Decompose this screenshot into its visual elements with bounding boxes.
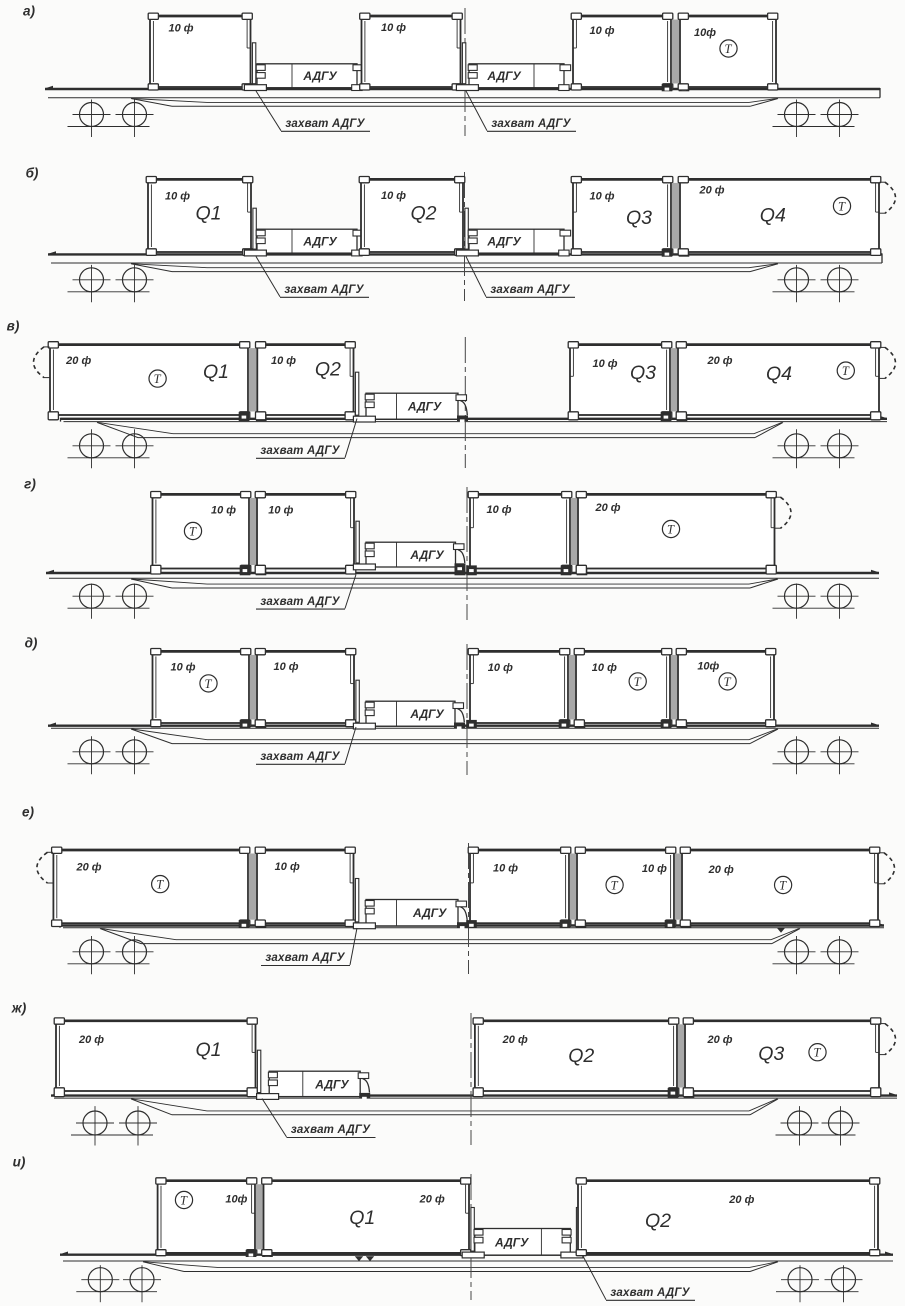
svg-text:10 ф: 10 ф (165, 191, 190, 203)
svg-text:20 ф: 20 ф (65, 355, 91, 367)
svg-text:10ф: 10ф (694, 27, 716, 39)
svg-text:АДГУ: АДГУ (409, 707, 444, 721)
svg-text:Q3: Q3 (758, 1043, 784, 1065)
svg-text:20 ф: 20 ф (502, 1034, 528, 1046)
svg-text:Q1: Q1 (195, 1039, 221, 1061)
svg-text:в): в) (7, 319, 20, 334)
svg-text:б): б) (26, 166, 39, 181)
svg-text:АДГУ: АДГУ (486, 69, 521, 83)
svg-text:10 ф: 10 ф (273, 661, 298, 673)
svg-text:АДГУ: АДГУ (409, 548, 444, 562)
svg-text:захват АДГУ: захват АДГУ (260, 445, 340, 457)
svg-text:Q2: Q2 (568, 1045, 594, 1067)
svg-text:T: T (814, 1046, 822, 1060)
svg-text:20 ф: 20 ф (706, 1034, 732, 1046)
svg-text:Q4: Q4 (766, 363, 792, 385)
svg-text:T: T (205, 677, 213, 691)
svg-text:10 ф: 10 ф (592, 358, 617, 370)
svg-text:АДГУ: АДГУ (302, 235, 337, 249)
svg-text:захват АДГУ: захват АДГУ (265, 952, 345, 964)
svg-text:10 ф: 10 ф (381, 22, 406, 34)
svg-text:е): е) (22, 805, 35, 820)
svg-text:АДГУ: АДГУ (302, 69, 337, 83)
svg-text:T: T (154, 372, 162, 386)
svg-text:10 ф: 10 ф (211, 505, 236, 517)
svg-text:захват АДГУ: захват АДГУ (291, 1124, 371, 1136)
svg-text:10 ф: 10 ф (589, 191, 614, 203)
svg-text:захват АДГУ: захват АДГУ (490, 284, 570, 296)
svg-text:а): а) (23, 4, 36, 19)
svg-text:T: T (779, 879, 787, 893)
svg-text:АДГУ: АДГУ (412, 906, 447, 920)
svg-text:Q2: Q2 (645, 1210, 671, 1232)
svg-text:10 ф: 10 ф (486, 504, 511, 516)
svg-text:10 ф: 10 ф (381, 190, 406, 202)
svg-text:АДГУ: АДГУ (407, 400, 442, 414)
svg-text:АДГУ: АДГУ (314, 1077, 349, 1091)
svg-text:10ф: 10ф (697, 661, 719, 673)
svg-text:T: T (725, 42, 733, 56)
svg-text:захват АДГУ: захват АДГУ (260, 596, 340, 608)
svg-text:захват АДГУ: захват АДГУ (610, 1287, 690, 1299)
svg-text:T: T (180, 1194, 188, 1208)
svg-text:T: T (611, 879, 619, 893)
svg-text:10 ф: 10 ф (642, 863, 667, 875)
svg-text:T: T (838, 200, 846, 214)
svg-text:захват АДГУ: захват АДГУ (285, 118, 365, 130)
svg-text:и): и) (13, 1155, 26, 1170)
svg-text:Q3: Q3 (630, 362, 656, 384)
svg-text:10 ф: 10 ф (488, 662, 513, 674)
svg-text:г): г) (24, 477, 36, 492)
svg-text:Q4: Q4 (760, 205, 786, 227)
svg-text:20 ф: 20 ф (78, 1034, 104, 1046)
svg-text:АДГУ: АДГУ (494, 1235, 529, 1249)
svg-text:10 ф: 10 ф (275, 861, 300, 873)
svg-text:20 ф: 20 ф (419, 1194, 445, 1206)
svg-text:20 ф: 20 ф (708, 864, 734, 876)
svg-text:захват АДГУ: захват АДГУ (491, 118, 571, 130)
svg-text:Q2: Q2 (315, 359, 341, 381)
svg-text:10 ф: 10 ф (592, 662, 617, 674)
svg-text:захват АДГУ: захват АДГУ (260, 751, 340, 763)
svg-text:20 ф: 20 ф (75, 862, 101, 874)
svg-text:Q1: Q1 (203, 361, 229, 383)
svg-text:Q2: Q2 (410, 203, 436, 225)
svg-text:АДГУ: АДГУ (486, 235, 521, 249)
svg-text:T: T (667, 523, 675, 537)
svg-text:T: T (724, 675, 732, 689)
svg-text:ж): ж) (11, 1001, 27, 1016)
svg-text:T: T (189, 525, 197, 539)
svg-text:10 ф: 10 ф (493, 862, 518, 874)
svg-text:10 ф: 10 ф (589, 25, 614, 37)
svg-text:20 ф: 20 ф (594, 502, 620, 514)
svg-text:д): д) (25, 636, 38, 651)
svg-text:20 ф: 20 ф (728, 1194, 754, 1206)
svg-text:10ф: 10ф (225, 1194, 247, 1206)
svg-text:10 ф: 10 ф (268, 505, 293, 517)
svg-text:T: T (156, 878, 164, 892)
svg-text:Q3: Q3 (626, 207, 652, 229)
svg-text:Q1: Q1 (349, 1207, 375, 1229)
svg-text:10 ф: 10 ф (168, 23, 193, 35)
svg-text:20 ф: 20 ф (706, 355, 732, 367)
svg-text:Q1: Q1 (195, 203, 221, 225)
svg-text:10 ф: 10 ф (271, 355, 296, 367)
svg-text:захват АДГУ: захват АДГУ (284, 284, 364, 296)
svg-text:T: T (842, 364, 850, 378)
svg-text:20 ф: 20 ф (698, 185, 724, 197)
svg-text:T: T (634, 675, 642, 689)
svg-text:10 ф: 10 ф (170, 661, 195, 673)
